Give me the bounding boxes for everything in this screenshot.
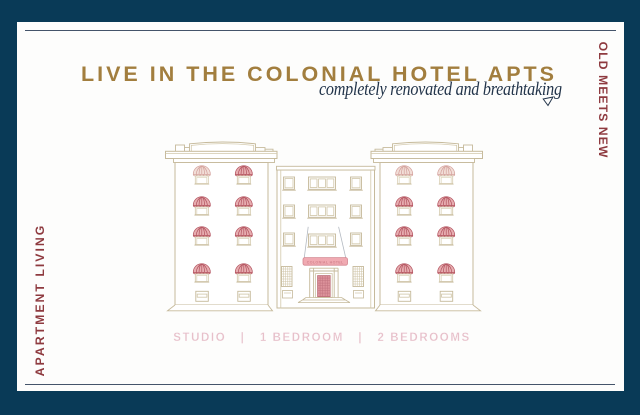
svg-text:COLONIAL HOTEL: COLONIAL HOTEL — [307, 260, 344, 264]
